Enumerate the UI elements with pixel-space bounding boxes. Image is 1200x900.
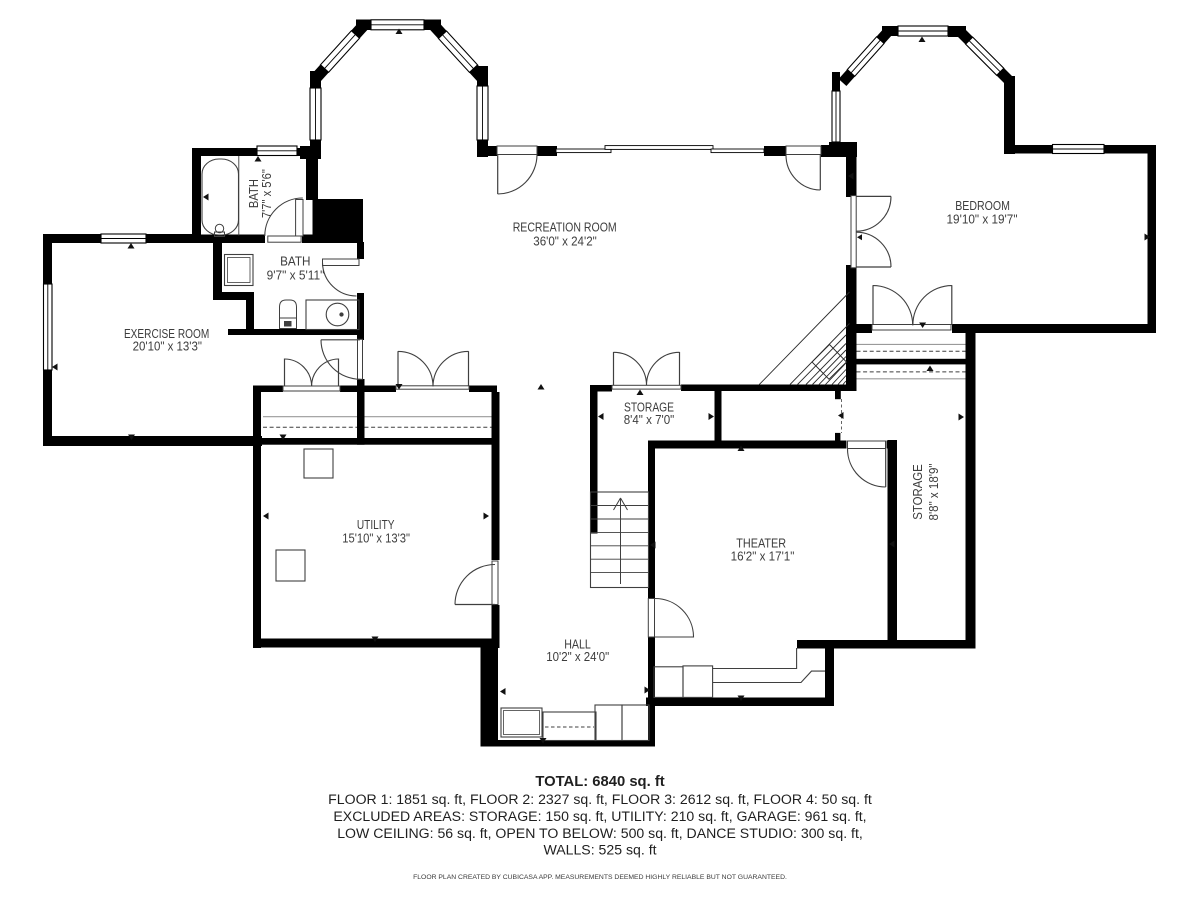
svg-text:FLOOR 1: 1851 sq. ft, FLOOR 2:: FLOOR 1: 1851 sq. ft, FLOOR 2: 2327 sq. … bbox=[328, 791, 872, 807]
svg-text:EXCLUDED AREAS: STORAGE: 150 s: EXCLUDED AREAS: STORAGE: 150 sq. ft, UTI… bbox=[333, 808, 866, 824]
svg-text:10'2" x 24'0": 10'2" x 24'0" bbox=[546, 650, 609, 664]
svg-text:7'7" x 5'6": 7'7" x 5'6" bbox=[260, 169, 274, 218]
svg-text:THEATER: THEATER bbox=[736, 536, 786, 550]
svg-text:36'0" x 24'2": 36'0" x 24'2" bbox=[533, 234, 597, 248]
svg-text:LOW CEILING: 56 sq. ft, OPEN T: LOW CEILING: 56 sq. ft, OPEN TO BELOW: 5… bbox=[337, 825, 863, 841]
svg-text:8'8" x 18'9": 8'8" x 18'9" bbox=[927, 464, 941, 521]
svg-text:WALLS: 525 sq. ft: WALLS: 525 sq. ft bbox=[543, 842, 656, 858]
svg-text:BEDROOM: BEDROOM bbox=[955, 199, 1010, 213]
svg-text:8'4" x 7'0": 8'4" x 7'0" bbox=[624, 413, 675, 427]
svg-text:TOTAL: 6840 sq. ft: TOTAL: 6840 sq. ft bbox=[535, 774, 664, 790]
svg-text:20'10" x 13'3": 20'10" x 13'3" bbox=[133, 340, 202, 354]
svg-text:BATH: BATH bbox=[247, 179, 261, 208]
svg-text:BATH: BATH bbox=[280, 254, 310, 268]
svg-text:16'2" x 17'1": 16'2" x 17'1" bbox=[731, 549, 795, 563]
svg-text:19'10" x 19'7": 19'10" x 19'7" bbox=[947, 213, 1018, 227]
svg-text:9'7" x 5'11": 9'7" x 5'11" bbox=[267, 269, 325, 283]
svg-text:15'10" x 13'3": 15'10" x 13'3" bbox=[342, 532, 410, 546]
svg-text:RECREATION ROOM: RECREATION ROOM bbox=[513, 220, 617, 234]
svg-text:UTILITY: UTILITY bbox=[357, 518, 395, 532]
svg-text:STORAGE: STORAGE bbox=[911, 464, 925, 520]
svg-text:FLOOR PLAN CREATED BY CUBICASA: FLOOR PLAN CREATED BY CUBICASA APP. MEAS… bbox=[413, 874, 787, 881]
